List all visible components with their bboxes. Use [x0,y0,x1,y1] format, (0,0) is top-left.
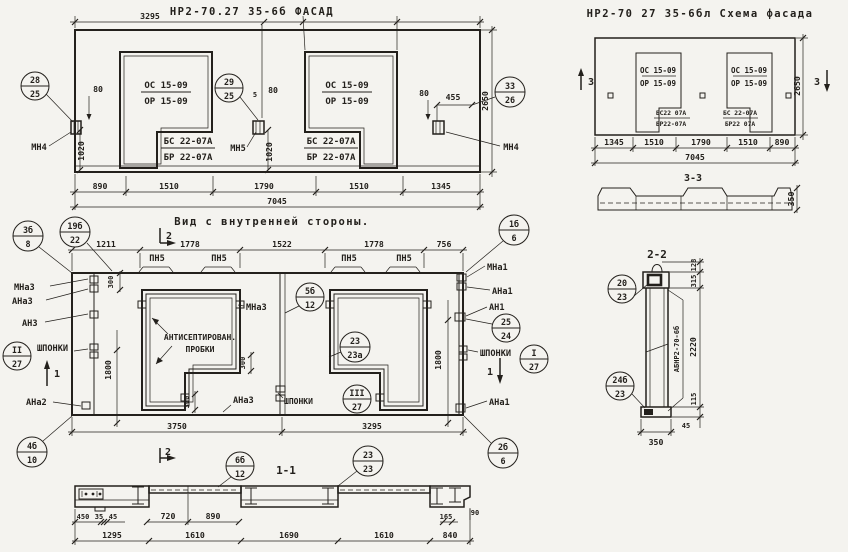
window-block-label: ОС 15-09 [731,66,768,75]
scheme-window-2: ОС 15-09 ОР 15-09 БС 22-07А БР22 07А [723,53,772,132]
balloon-bottom: 26 [505,95,515,105]
antiseptic-plugs-note: АНТИСЕПТИРОВАН. ПРОБКИ [152,318,236,364]
balloon-4b-10: 4б 10 [17,416,72,467]
sill-block-label: БР22 07А [725,121,756,128]
dim-1020-mid: 1020 [264,142,274,162]
balloon-bottom: 12 [235,469,245,479]
label-an1: АН1 [489,303,505,313]
dim-45: 45 [109,513,117,521]
dim-840: 840 [443,530,458,540]
dim-1510: 1510 [159,181,179,191]
balloon-top: 3б [23,225,33,235]
balloon-bottom: 6 [500,456,505,466]
balloon-II-27: II 27 [3,342,31,370]
section-2-2-dims: 128 315 2220 115 45 350 [637,258,704,447]
balloon-top: II [12,345,22,355]
pn5-label: ПН5 [211,254,227,264]
section-3-label: 3 [588,77,594,88]
dim-890: 890 [775,137,790,147]
section-3-3: 3-3 350 [598,173,800,213]
balloon-top: 24б [612,375,627,385]
dim-1345: 1345 [431,181,451,191]
window-block-label: ОС 15-09 [325,81,368,91]
section-3-mark-left: 3 [578,68,594,90]
section-1-label: 1 [54,369,60,380]
section-2-mark-bottom: 2 [160,447,176,463]
facade-window-1: ОС 15-09 ОР 15-09 БС 22-07А БР 22-07А [120,52,215,168]
dim-1610: 1610 [374,530,394,540]
balloon-III-27: III 27 [343,385,371,413]
balloon-bottom: 27 [529,362,539,372]
dim-1345: 1345 [604,137,624,147]
dim-1510: 1510 [644,137,664,147]
balloon-I-27: I 27 [520,345,548,373]
anchor-mn4-right-icon [433,121,444,134]
balloon-25-24: 25 24 [466,314,520,342]
balloon-top: 33 [505,81,515,91]
balloon-23-23: 23 23 [338,446,383,486]
dim-720: 720 [161,511,176,521]
section-1-label: 1 [487,367,493,378]
dim-2220: 2220 [688,337,698,357]
window-block-label: ОР 15-09 [325,97,368,107]
balloon-bottom: 22 [70,235,80,245]
sill-block-label: БР 22-07А [164,153,213,163]
balloon-top: III [349,388,364,398]
dim-1800-left: 1800 [103,360,113,380]
balloon-bottom: 25 [30,89,40,99]
dim-80-mid: 80 [268,85,278,95]
dim-80-right: 80 [419,88,429,98]
dim-1522: 1522 [272,239,292,249]
scheme-anchor-mark [700,93,705,98]
label-mna1: МНа1 [487,263,508,273]
pn5-label: ПН5 [341,254,357,264]
dim-455: 455 [446,92,461,102]
balloon-bottom: 24 [501,331,511,341]
sill-block-label: БС 22-07А [307,137,356,147]
facade-drawing: НР2-70.27 35-6б ФАСАД ОС 15-09 ОР 15-09 … [21,6,525,210]
balloon-top: 28 [30,75,40,85]
pn5-label: ПН5 [396,254,412,264]
dim-7045: 7045 [685,152,705,162]
sill-block-label: БР22-07А [656,121,687,128]
balloon-29-25: 29 25 [215,74,258,120]
dim-315: 315 [690,275,698,288]
window-block-label: ОР 15-09 [731,79,768,88]
balloon-top: 6б [235,455,245,465]
dim-128: 128 [690,259,698,272]
key-symbols [82,274,467,412]
dim-90: 90 [471,509,479,517]
section-1-mark-left: 1 [44,360,60,386]
label-shponki-right: ШПОНКИ [480,349,511,359]
panel-mark-label: АБНР2-70-6б [673,326,681,372]
balloon-top: 23 [350,336,360,346]
sill-block-label: БС 22-07А [164,137,213,147]
dim-1610: 1610 [185,530,205,540]
balloon-24b-23: 24б 23 [606,372,645,408]
scheme-anchor-mark [608,93,613,98]
note-line-1: АНТИСЕПТИРОВАН. [164,333,236,342]
section-2-2: 2-2 АБНР2-70-6б 128 315 [606,248,704,447]
inner-view-title: Вид с внутренней стороны. [174,216,370,228]
scheme-title: НР2-70 27 35-6бл Схема фасада [587,8,814,20]
section-1-mark-right: 1 [487,358,503,384]
lifting-loop-icon [652,265,662,273]
balloon-bottom: 27 [12,359,22,369]
balloon-top: 4б [27,441,37,451]
balloon-bottom: 10 [27,455,37,465]
label-an3: АН3 [22,319,38,329]
section-3-label: 3 [814,77,820,88]
mark-mn4-right: МН4 [503,143,519,153]
dim-5-mid: 5 [253,91,257,99]
dim-890: 890 [206,511,221,521]
label-ana1: АНа1 [492,287,513,297]
balloon-top: 29 [224,77,234,87]
balloon-33-26: 33 26 [495,77,525,107]
scheme-anchor-mark [786,93,791,98]
balloon-bottom: 27 [352,402,362,412]
section-3-3-title: 3-3 [684,173,702,184]
label-ana2: АНа2 [26,398,47,408]
window-block-label: ОС 15-09 [640,66,677,75]
section-2-2-title: 2-2 [647,248,667,261]
dim-165: 165 [440,513,453,521]
drawing-sheet: НР2-70.27 35-6б ФАСАД ОС 15-09 ОР 15-09 … [0,0,848,552]
balloon-bottom: 25 [224,91,234,101]
inner-bottom-dimensions: 3750 3295 [68,417,467,436]
section-1-1-dims-row2: 1295 1610 1690 1610 840 [72,509,474,545]
dim-450: 450 [77,513,90,521]
dim-80-left: 80 [93,84,103,94]
dim-350: 350 [786,192,796,207]
dim-1790: 1790 [691,137,711,147]
section-3-3-dim: 350 [786,185,800,213]
section-2-mark-top: 2 [160,228,176,246]
balloon-3b-8: 3б 8 [13,221,72,273]
balloon-28-25: 28 25 [21,72,73,122]
section-3-3-profile [598,188,792,210]
dim-300: 300 [183,396,191,409]
sill-block-label: БР 22-07А [307,153,356,163]
balloon-bottom: 23 [363,464,373,474]
dim-1790: 1790 [254,181,274,191]
dim-3295: 3295 [362,421,382,431]
balloon-bottom: 8 [25,239,30,249]
dim-300: 300 [239,357,247,370]
dim-1211: 1211 [96,239,116,249]
section-2-label: 2 [166,231,172,242]
balloon-top: 25 [501,317,511,327]
balloon-bottom: 23а [347,350,362,360]
label-ana1-bottom: АНа1 [489,398,510,408]
scheme-window-1: ОС 15-09 ОР 15-09 БС22 07А БР22-07А [636,53,690,132]
inner-view-drawing: Вид с внутренней стороны. 1211 1778 1522… [3,215,548,468]
balloon-bottom: 12 [305,300,315,310]
dim-7045: 7045 [267,196,287,206]
label-shponki-left: ШПОНКИ [37,344,68,354]
dim-45: 45 [682,422,690,430]
facade-title: НР2-70.27 35-6б ФАСАД [170,6,334,18]
facade-bottom-dimensions: 890 1510 1790 1510 1345 7045 [70,174,484,210]
mark-mn5: МН5 [230,144,246,154]
dim-2650: 2650 [480,91,490,111]
dim-1690: 1690 [279,530,299,540]
balloon-top: 20 [617,278,627,288]
scheme-drawing: НР2-70 27 35-6бл Схема фасада ОС 15-09 О… [578,8,830,166]
dim-3295: 3295 [140,11,160,21]
facade-anchor-dims: 80 1020 5 80 1020 80 455 [76,84,495,173]
balloon-top: 23 [363,450,373,460]
note-line-2: ПРОБКИ [186,345,215,354]
dim-1020-left: 1020 [76,141,86,161]
section-3-mark-right: 3 [814,70,830,92]
dim-1295: 1295 [102,530,122,540]
balloon-bottom: 6 [511,233,516,243]
balloon-5b-12: 5б 12 [285,283,324,313]
balloon-top: 2б [498,442,508,452]
dim-1510: 1510 [349,181,369,191]
dim-115: 115 [690,393,698,406]
section-2-label: 2 [165,447,171,458]
facade-top-dimension: 3295 [70,11,484,118]
balloon-bottom: 23 [615,389,625,399]
balloon-top: 5б [305,286,315,296]
pn5-labels: ПН5 ПН5 ПН5 ПН5 [139,254,420,272]
label-mna3: МНа3 [14,283,35,293]
window-block-label: ОР 15-09 [144,97,187,107]
section-1-1-title: 1-1 [276,464,296,477]
balloon-top: 19б [67,221,82,231]
dim-1510: 1510 [738,137,758,147]
dim-3750: 3750 [167,421,187,431]
section-1-1: 1-1 6б 12 23 23 [72,446,479,545]
label-ana3: АНа3 [12,297,33,307]
section-1-1-dims-row1: 450 35 45 720 890 165 90 [72,494,479,525]
balloon-6b-12: 6б 12 [218,452,254,487]
sill-block-label: БС22 07А [656,110,687,117]
dim-1778: 1778 [364,239,384,249]
mark-mn4-left: МН4 [31,143,47,153]
pn5-label: ПН5 [149,254,165,264]
balloon-bottom: 23 [617,292,627,302]
balloon-top: I [531,348,536,358]
balloon-23-23a: 23 23а [329,332,370,362]
sill-block-label: БС 22-07А [723,110,757,117]
scheme-bottom-dimensions: 1345 1510 1790 1510 890 7045 [591,137,799,166]
label-shponki-mid: ШПОНКИ [284,397,313,406]
balloon-top: 1б [509,219,519,229]
dim-2650: 2650 [792,76,802,96]
section-2-2-body: АБНР2-70-6б [641,265,683,418]
dim-756: 756 [437,239,452,249]
dim-890: 890 [93,181,108,191]
balloon-20-23: 20 23 [608,275,648,303]
dim-1800-right: 1800 [433,350,443,370]
window-block-label: ОР 15-09 [640,79,677,88]
facade-window-2: ОС 15-09 ОР 15-09 БС 22-07А БР 22-07А [304,52,397,168]
section-1-1-profile [75,486,470,511]
label-mna3-mid: МНа3 [246,303,267,313]
dim-35: 35 [95,513,103,521]
dim-350: 350 [649,437,664,447]
window-block-label: ОС 15-09 [144,81,187,91]
dim-1778: 1778 [180,239,200,249]
dim-300: 300 [107,276,115,289]
anchor-mn5-mid-icon [253,121,264,134]
label-ana3-mid: АНа3 [233,396,254,406]
balloon-2b-6: 2б 6 [464,416,518,468]
